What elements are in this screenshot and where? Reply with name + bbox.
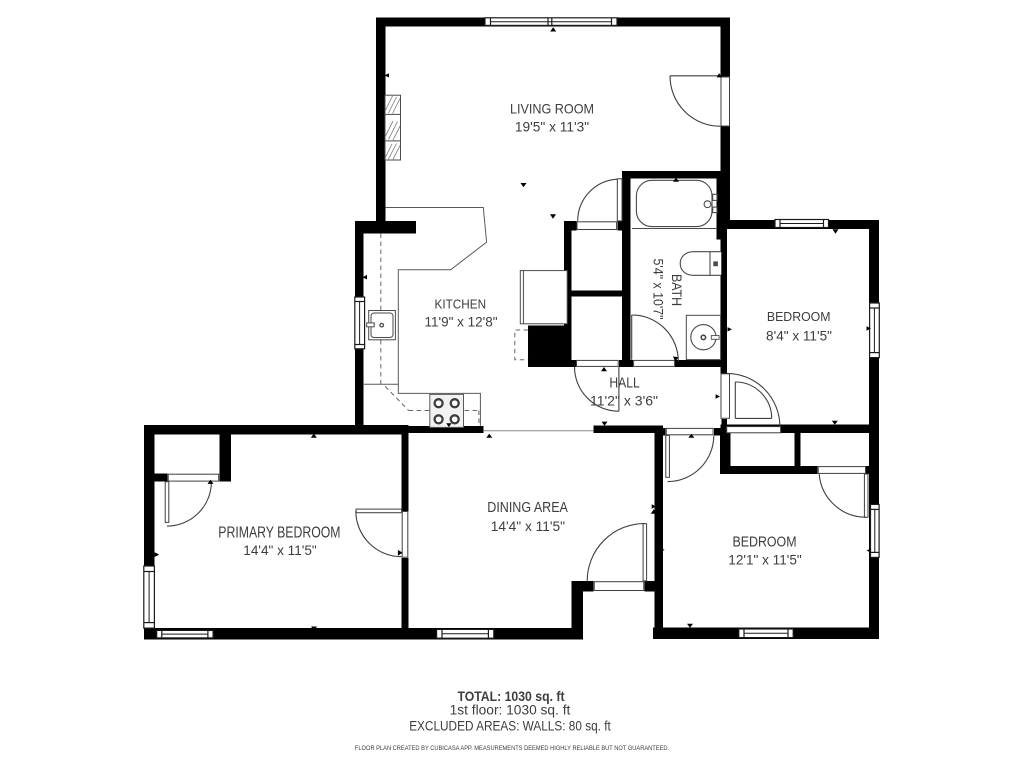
svg-text:19'5" x 11'3": 19'5" x 11'3" xyxy=(515,119,589,135)
svg-text:HALL: HALL xyxy=(609,374,639,391)
svg-text:8'4" x 11'5": 8'4" x 11'5" xyxy=(766,327,832,343)
svg-text:DINING AREA: DINING AREA xyxy=(487,500,568,516)
svg-text:FLOOR PLAN CREATED BY CUBICASA: FLOOR PLAN CREATED BY CUBICASA APP. MEAS… xyxy=(355,745,669,752)
svg-text:BEDROOM: BEDROOM xyxy=(767,309,831,324)
svg-text:11'9" x 12'8": 11'9" x 12'8" xyxy=(425,313,498,329)
svg-text:1st floor: 1030 sq. ft: 1st floor: 1030 sq. ft xyxy=(450,703,571,718)
svg-text:BATH: BATH xyxy=(669,274,684,306)
svg-text:14'4" x 11'5": 14'4" x 11'5" xyxy=(243,542,316,558)
svg-text:PRIMARY BEDROOM: PRIMARY BEDROOM xyxy=(218,525,340,542)
svg-text:LIVING ROOM: LIVING ROOM xyxy=(510,100,594,116)
svg-text:EXCLUDED AREAS: WALLS: 80 sq.: EXCLUDED AREAS: WALLS: 80 sq. ft xyxy=(409,718,611,733)
svg-text:14'4" x 11'5": 14'4" x 11'5" xyxy=(491,518,565,534)
svg-text:KITCHEN: KITCHEN xyxy=(435,297,487,312)
svg-text:BEDROOM: BEDROOM xyxy=(732,534,796,550)
svg-text:12'1" x 11'5": 12'1" x 11'5" xyxy=(728,551,801,567)
svg-text:5'4" x 10'7": 5'4" x 10'7" xyxy=(650,259,666,320)
svg-text:11'2" x 3'6": 11'2" x 3'6" xyxy=(590,392,658,408)
